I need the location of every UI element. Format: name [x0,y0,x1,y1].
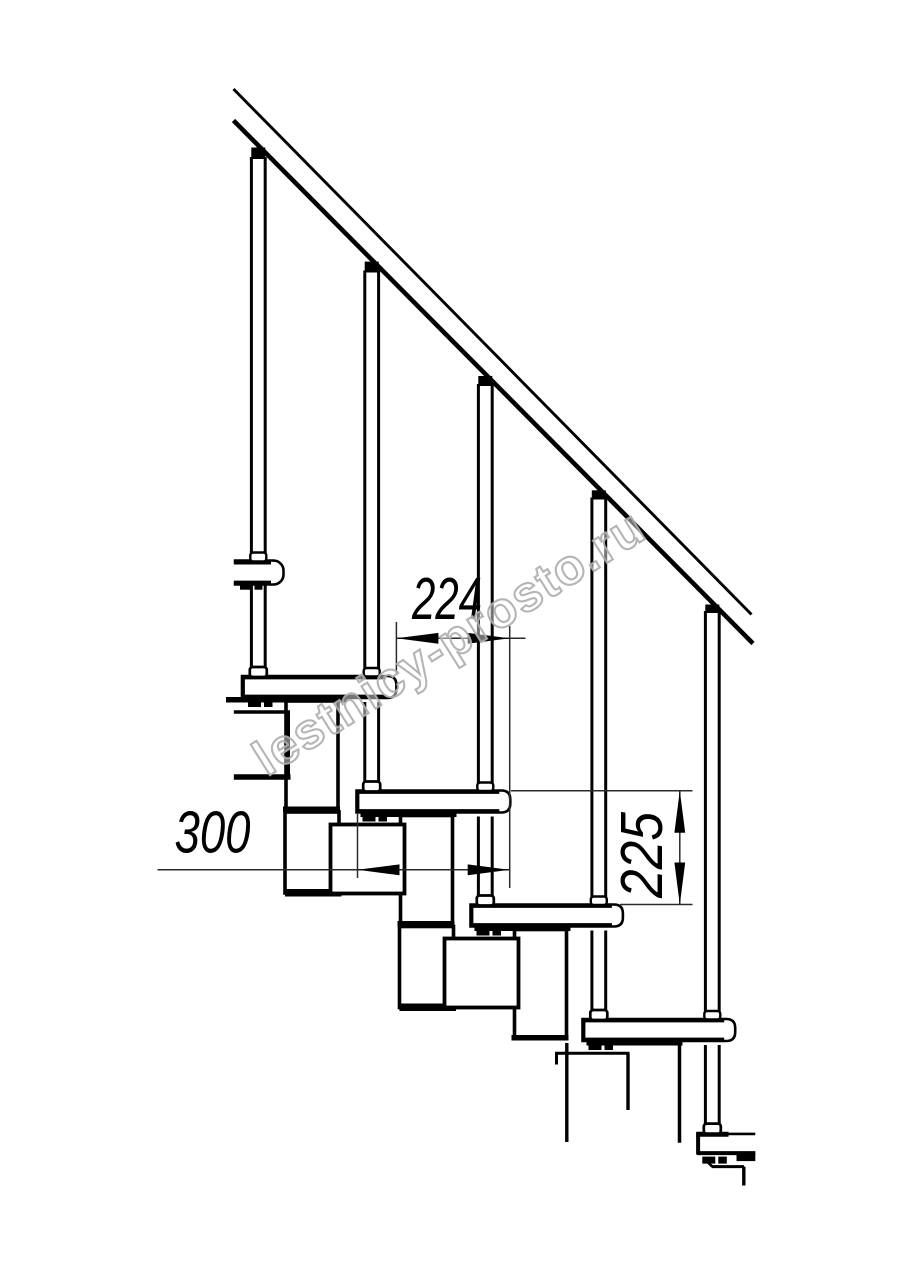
svg-text:225: 225 [609,812,675,899]
svg-text:300: 300 [175,800,251,866]
